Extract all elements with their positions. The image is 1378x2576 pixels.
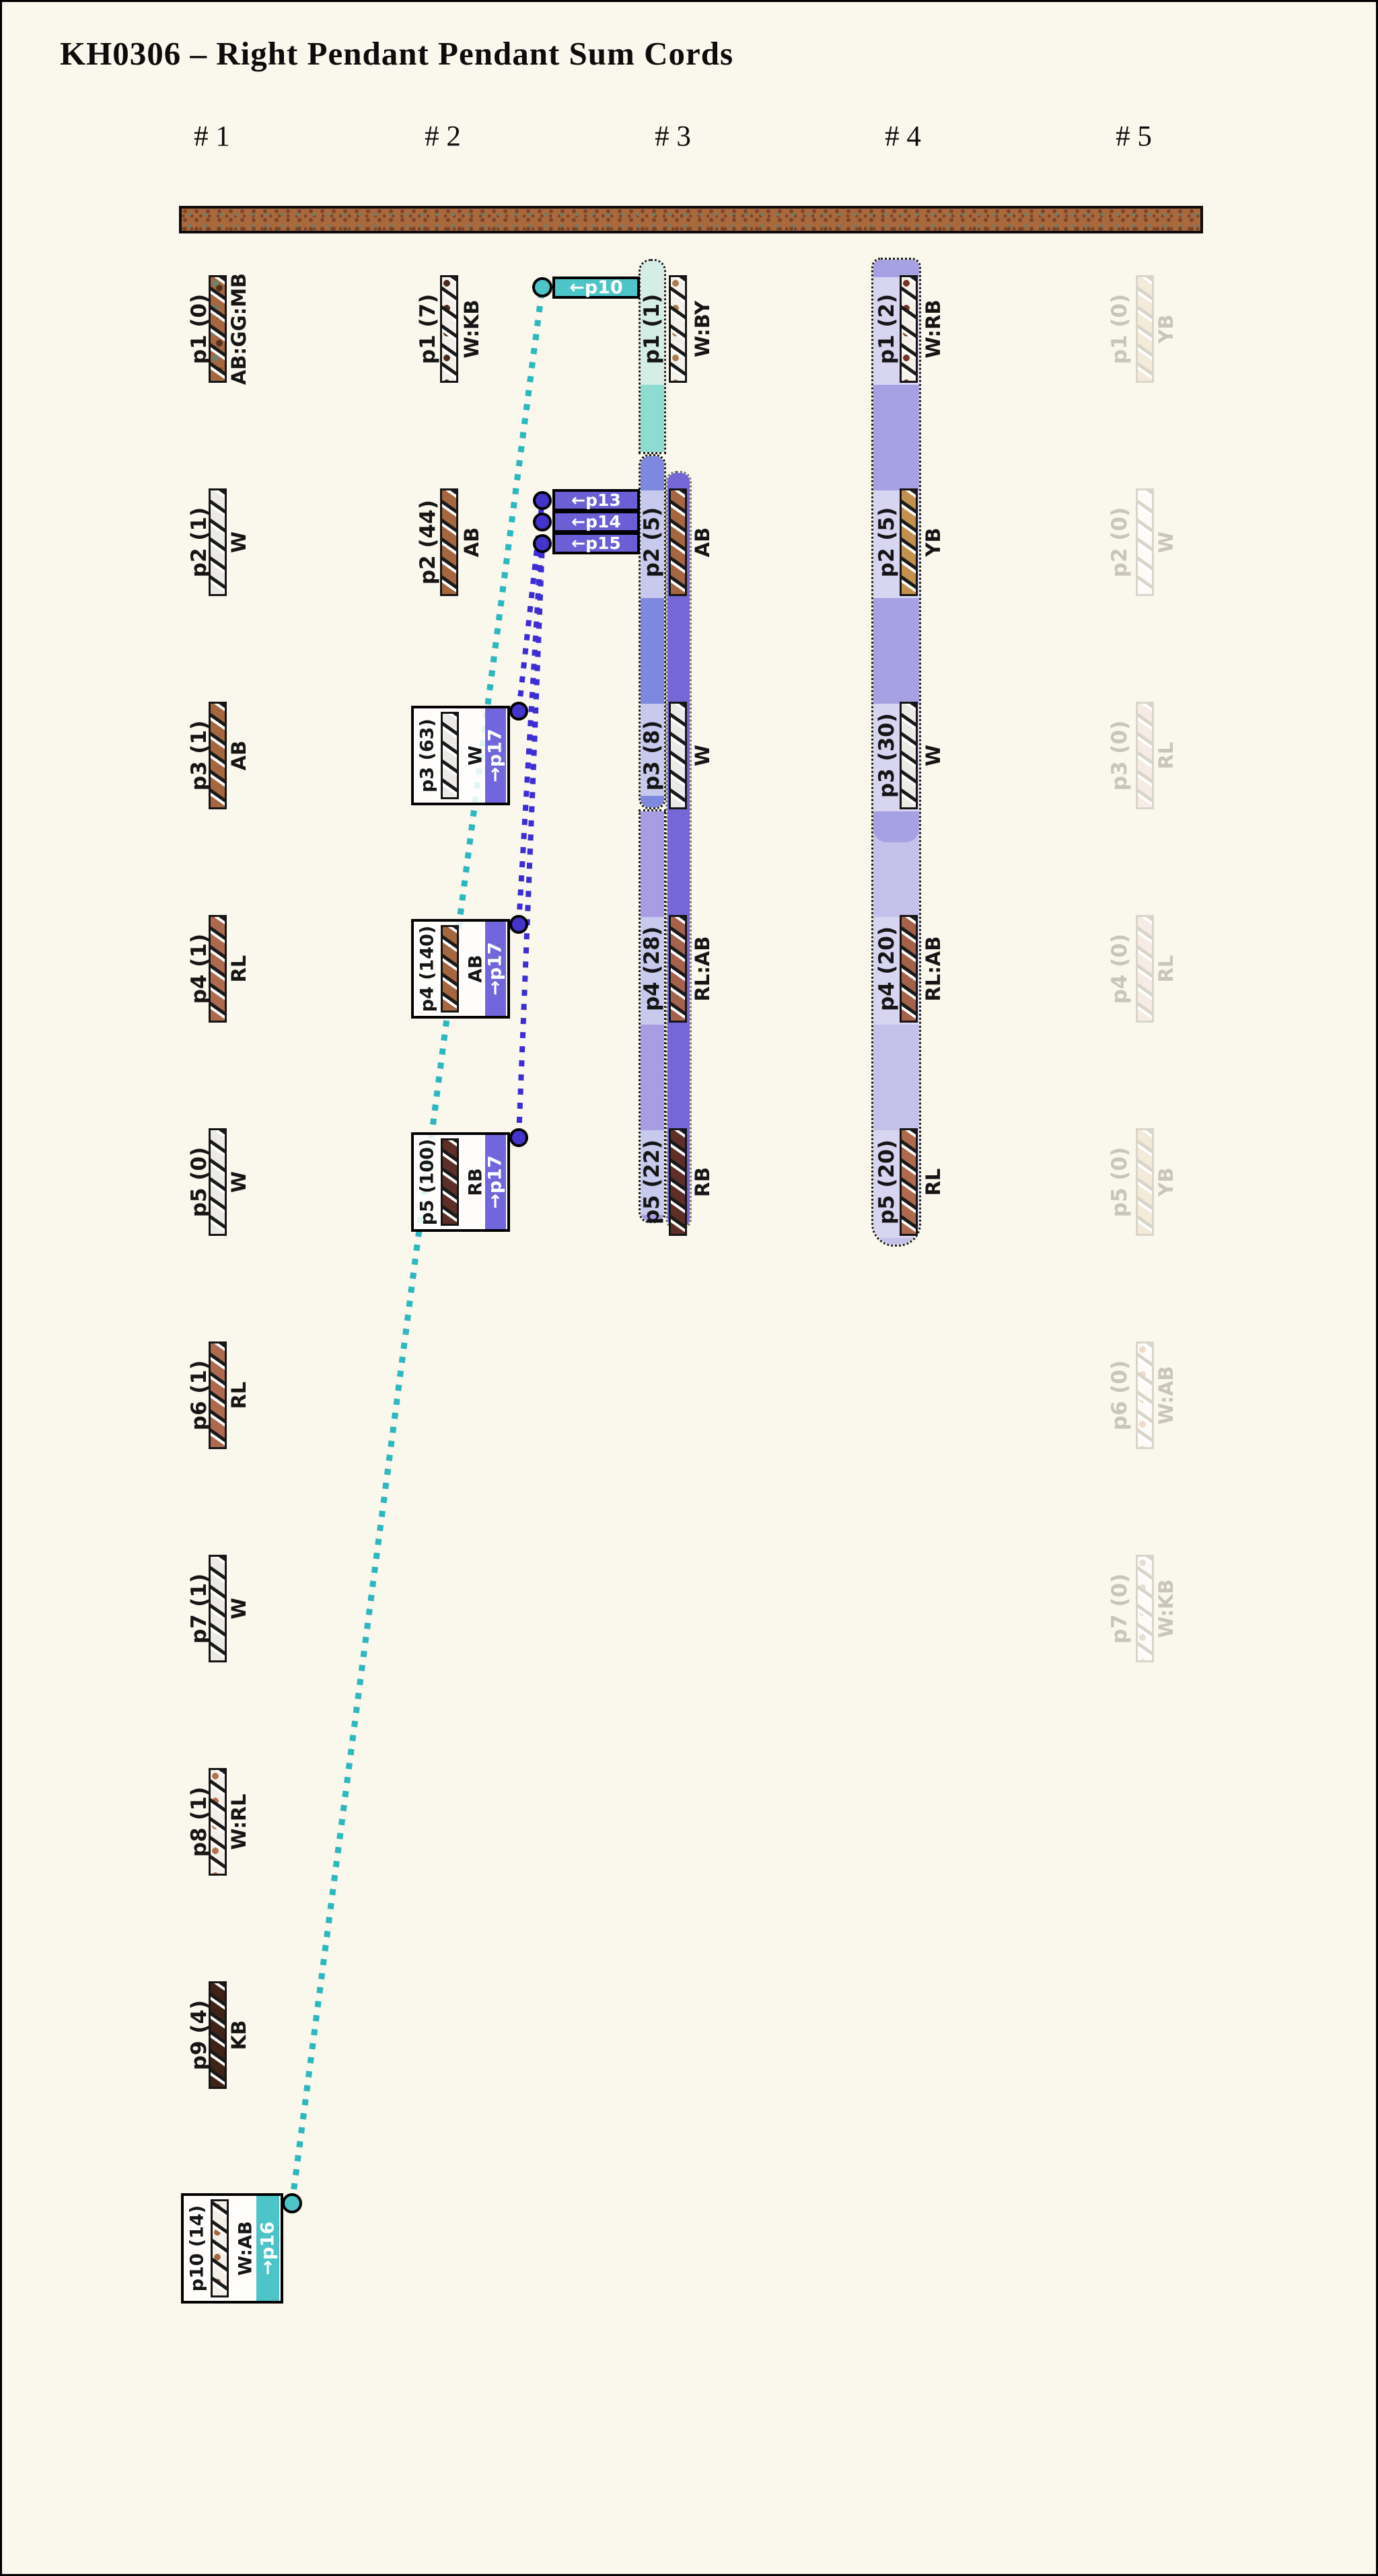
cord-icon [900,275,918,383]
cord-icon [209,1341,227,1449]
band-segment [641,1025,664,1130]
band-segment [873,811,919,842]
band-segment [873,842,919,917]
cord-icon [209,1555,227,1662]
cord-icon [440,488,458,596]
cord-icon [209,275,227,383]
pendant-label: p3 (30) [875,713,899,798]
cord-icon [1136,275,1154,383]
band-segment [873,385,919,490]
cord-icon [209,1981,227,2089]
cord-color-code: W:RL [227,1794,250,1850]
pendant-label: p5 (0) [1108,1147,1132,1217]
pendant-label: p7 (0) [1108,1574,1132,1644]
column-header-4: # 4 [885,120,921,153]
cord-icon [900,488,918,596]
cord-color-code: RB [466,1168,486,1195]
cord-color-code: YB [1155,314,1177,343]
primary-cord-bar [179,206,1203,233]
diagram-title: KH0306 – Right Pendant Pendant Sum Cords [60,34,733,73]
cord-color-code: AB [466,955,486,982]
pendant-label: p6 (0) [1108,1360,1132,1430]
cord-icon [440,275,458,383]
cord-color-code: RL [227,1382,250,1409]
marker-box-p14: ←p14 [552,511,640,533]
pendant-label: p3 (8) [640,721,664,790]
cord-icon [669,275,687,383]
cord-icon [209,915,227,1023]
relation-line-purple [519,544,542,1137]
pendant-label: p1 (1) [640,294,664,364]
cord-color-code: RB [691,1167,714,1197]
cord-color-code: W:KB [1155,1579,1177,1637]
band-segment [873,598,919,704]
cord-icon [1136,1555,1154,1662]
cord-icon [209,1768,227,1876]
pendant-label: p5 (100) [417,1139,438,1226]
pendant-label: p5 (22) [640,1140,664,1224]
cord-color-code: W [466,745,486,766]
pendant-label: p4 (0) [1108,934,1132,1004]
pendant-label: p5 (0) [187,1147,211,1217]
pendant-label: p3 (1) [187,721,211,790]
cord-color-code: W [1155,531,1177,553]
band-segment [641,598,664,704]
marker-box-p13: ←p13 [552,489,640,511]
cord-icon [1136,702,1154,809]
cord-icon [669,1128,687,1236]
band-segment [641,456,664,490]
cord-icon [441,925,459,1013]
pendant-box: p3 (63)W→p17 [411,706,510,805]
connector-dot [509,702,528,721]
khipu-diagram: KH0306 – Right Pendant Pendant Sum Cords… [0,0,1378,2576]
pendant-label: p4 (28) [640,926,664,1011]
pendant-label: p2 (5) [640,507,664,577]
pendant-label: p5 (20) [875,1140,899,1224]
cord-color-code: W [227,1171,250,1193]
cord-icon [900,702,918,809]
cord-color-code: YB [1155,1167,1177,1196]
marker-band: →p16 [256,2196,279,2301]
pendant-label: p10 (14) [187,2205,208,2292]
cord-color-code: AB:GG:MB [227,273,250,385]
cord-icon [900,1128,918,1236]
pendant-label: p2 (0) [1108,507,1132,577]
marker-band-label: →p17 [485,729,506,782]
relation-line-purple [519,522,542,924]
connector-dot [533,491,552,510]
band-cap [873,811,919,842]
cord-icon [669,488,687,596]
cord-color-code: W:AB [235,2221,256,2275]
cord-color-code: RL [227,955,250,983]
cord-color-code: W:BY [691,301,714,357]
cord-color-code: YB [922,527,945,556]
marker-band-label: →p16 [258,2221,279,2275]
cord-icon [900,915,918,1023]
cord-icon [1136,1341,1154,1449]
cord-color-code: W [227,1598,250,1619]
band-segment [641,385,664,454]
cord-icon [211,2199,229,2297]
marker-band-label: →p17 [485,942,506,996]
column-header-1: # 1 [194,120,230,153]
pendant-label: p4 (1) [187,934,211,1004]
pendant-label: p6 (1) [187,1360,211,1430]
cord-icon [209,702,227,809]
cord-color-code: AB [460,527,483,558]
pendant-label: p9 (4) [187,2000,211,2070]
pendant-label: p1 (7) [416,294,440,364]
cord-icon [1136,915,1154,1023]
cord-color-code: AB [691,527,714,558]
marker-band: →p17 [485,922,506,1016]
pendant-box: p4 (140)AB→p17 [411,919,510,1019]
cord-color-code: W:AB [1155,1366,1177,1424]
column-header-2: # 2 [425,120,461,153]
cord-color-code: RL [922,1169,945,1196]
pendant-label: p7 (1) [187,1574,211,1644]
column-header-5: # 5 [1116,120,1152,153]
connector-dot [509,915,528,934]
pendant-label: p2 (44) [416,500,440,585]
cord-color-code: RL [1155,955,1177,983]
connector-dot [509,1128,528,1147]
band-segment [641,811,664,917]
pendant-label: p1 (0) [1108,294,1132,364]
cord-color-code: W [691,745,714,766]
pendant-label: p8 (1) [187,1787,211,1857]
cord-icon [209,1128,227,1236]
cord-color-code: RL:AB [922,936,945,1002]
marker-band: →p17 [485,1135,506,1229]
cord-color-code: W [227,531,250,553]
pendant-label: p2 (5) [875,507,899,577]
cord-color-code: W [922,745,945,766]
cord-color-code: RL [1155,742,1177,770]
pendant-box: p5 (100)RB→p17 [411,1132,510,1232]
pendant-label: p1 (2) [875,294,899,364]
pendant-label: p3 (0) [1108,721,1132,790]
pendant-label: p4 (140) [417,926,438,1013]
connector-dot [533,513,552,531]
connector-dot [532,277,552,297]
relation-lines [2,2,1378,2576]
cord-color-code: AB [227,741,250,771]
pendant-label: p1 (0) [187,294,211,364]
pendant-label: p3 (63) [417,719,438,793]
marker-band-label: →p17 [485,1155,506,1209]
cord-color-code: KB [227,2020,250,2051]
cord-icon [441,1138,459,1226]
cord-icon [1136,488,1154,596]
pendant-box: p10 (14)W:AB→p16 [181,2193,283,2304]
pendant-label: p2 (1) [187,507,211,577]
band-segment [873,1025,919,1130]
marker-box-p10: ←p10 [552,277,640,299]
marker-box-p15: ←p15 [552,532,640,554]
cord-icon [441,712,459,799]
marker-band: →p17 [485,708,506,803]
cord-icon [669,915,687,1023]
cord-icon [1136,1128,1154,1236]
cord-color-code: W:KB [460,299,483,358]
cord-icon [209,488,227,596]
band-segment [873,1238,919,1247]
band-segment [641,796,664,809]
connector-dot [282,2193,302,2213]
column-header-3: # 3 [655,120,691,153]
pendant-label: p4 (20) [875,926,899,1011]
cord-icon [669,702,687,809]
cord-color-code: RL:AB [691,936,714,1002]
relation-line-purple [519,501,542,710]
connector-dot [533,534,552,553]
cord-color-code: W:RB [922,299,945,358]
